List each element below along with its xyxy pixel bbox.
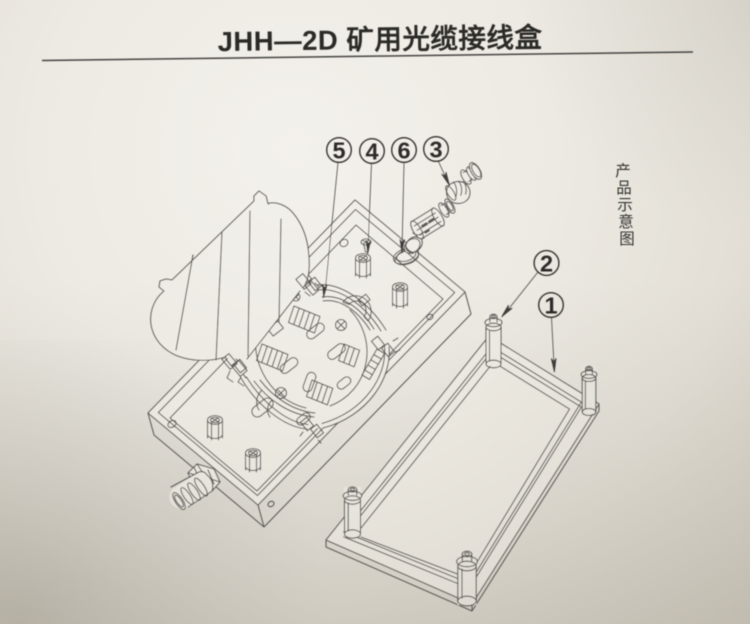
svg-text:2: 2 — [540, 251, 553, 277]
svg-text:JHH—2D 矿用光缆接线盒: JHH—2D 矿用光缆接线盒 — [217, 22, 542, 57]
svg-text:6: 6 — [397, 138, 410, 164]
svg-text:品: 品 — [616, 180, 632, 197]
svg-text:1: 1 — [544, 293, 557, 319]
svg-text:意: 意 — [618, 212, 634, 231]
svg-text:示: 示 — [617, 197, 633, 214]
svg-text:4: 4 — [365, 139, 378, 165]
svg-text:产: 产 — [615, 162, 631, 180]
svg-text:3: 3 — [429, 137, 442, 163]
svg-text:图: 图 — [619, 231, 635, 248]
svg-text:5: 5 — [332, 138, 345, 164]
